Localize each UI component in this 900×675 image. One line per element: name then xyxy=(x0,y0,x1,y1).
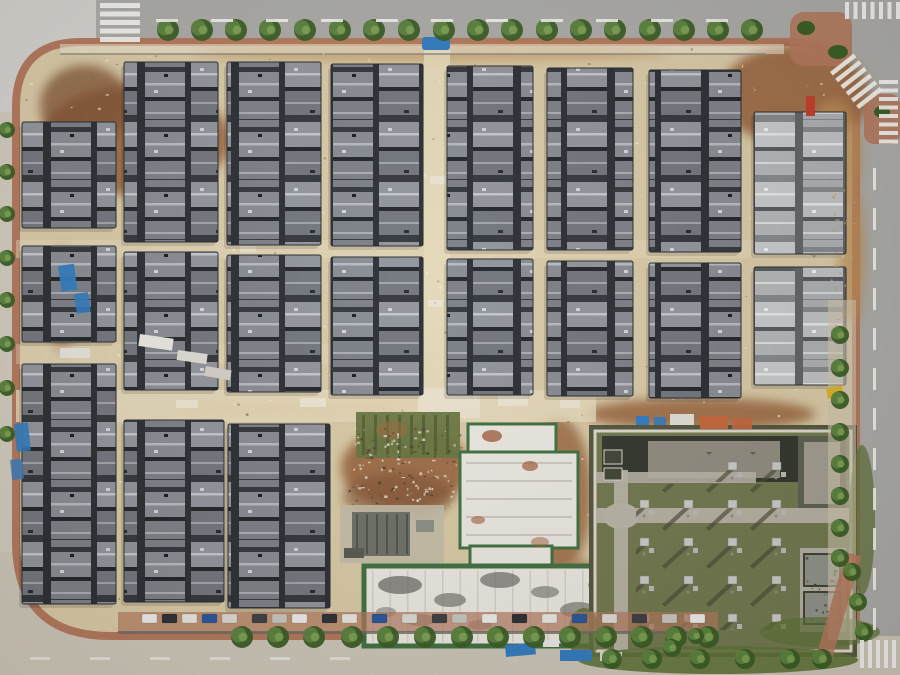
parked-cars xyxy=(402,614,417,623)
debris-pile-dark xyxy=(461,447,462,448)
crosswalk-bottom-right-bar xyxy=(868,640,872,668)
island-bush xyxy=(797,21,815,35)
ground-debris-dark xyxy=(274,252,276,254)
lane-dashes-bottom xyxy=(90,657,110,660)
debris-pile-light xyxy=(452,491,455,493)
right-sidewalk-materials xyxy=(851,296,853,298)
right-sidewalk-materials xyxy=(850,218,852,219)
garden-rows-bar xyxy=(422,415,425,455)
debris-pile-dark xyxy=(411,446,413,448)
crosswalk-right-bar xyxy=(879,123,898,127)
debris-pile-light xyxy=(391,443,393,445)
right-sidewalk-materials xyxy=(835,325,837,327)
lane-dashes-right xyxy=(873,248,876,270)
debris-pile-light xyxy=(445,431,446,432)
debris-pile-light xyxy=(407,494,409,496)
north-street-trees-hi xyxy=(406,26,415,35)
debris-pile-light xyxy=(437,476,439,479)
debris-pile-dark xyxy=(358,434,360,435)
garden-plot xyxy=(356,412,460,458)
transformer-detail xyxy=(824,594,825,595)
blue-tarp-left-2 xyxy=(10,459,24,480)
site-fence-line xyxy=(60,53,766,55)
right-sidewalk-materials xyxy=(833,230,835,232)
debris-pile-dark xyxy=(393,432,394,434)
right-sidewalk-materials xyxy=(848,287,849,289)
debris-pile-light xyxy=(389,470,392,473)
debris-pile-dark xyxy=(370,457,373,460)
parked-cars xyxy=(252,614,267,623)
rust-stain xyxy=(482,430,502,442)
right-sidewalk-materials xyxy=(844,285,846,287)
ground-debris-light xyxy=(322,212,324,213)
south-street-trees-hi xyxy=(422,633,431,642)
tree-hi xyxy=(694,633,700,639)
rust-stain xyxy=(522,461,538,471)
debris-pile-light xyxy=(456,464,457,466)
ground-debris-light xyxy=(754,90,756,91)
crosswalk-right-bar xyxy=(879,89,898,93)
north-street-trees-hi xyxy=(165,26,174,35)
south-street-trees-hi xyxy=(239,633,248,642)
staging-grid-bar xyxy=(386,514,388,554)
right-sidewalk-materials xyxy=(842,317,844,318)
ground-debris-light xyxy=(369,59,370,61)
clubhouse-roof-lines-bar xyxy=(466,498,572,500)
debris-pile-dark xyxy=(419,442,422,444)
north-street-trees-hi xyxy=(544,26,553,35)
debris-pile-dark xyxy=(411,478,413,479)
right-sidewalk-materials xyxy=(836,252,839,253)
right-sidewalk-materials xyxy=(836,308,838,309)
east-street-trees-hi xyxy=(837,364,844,371)
north-street-trees-hi xyxy=(681,26,690,35)
debris-pile-dark xyxy=(459,434,461,436)
ground-debris-dark xyxy=(746,296,747,297)
transformer-detail xyxy=(819,588,820,590)
staging-grid-bar xyxy=(406,514,408,554)
clubhouse-roof-lines-bar xyxy=(466,462,572,464)
debris-pile-dark xyxy=(450,485,453,486)
substation-south-trees-hi xyxy=(697,655,705,663)
ground-debris-light xyxy=(778,415,780,417)
ground-debris-light xyxy=(439,80,440,82)
ground-debris-light xyxy=(748,217,750,219)
debris-pile-light xyxy=(431,488,433,490)
west-street-trees-hi xyxy=(5,255,11,261)
lane-dashes-bottom xyxy=(30,657,50,660)
ground-debris-light xyxy=(439,286,442,289)
staging-grid-bar xyxy=(396,514,398,554)
lane-dashes-right xyxy=(873,528,876,550)
lane-dashes-right xyxy=(873,168,876,190)
right-sidewalk-materials xyxy=(842,312,845,314)
crosswalk-top-right-bar xyxy=(845,2,849,19)
debris-pile-light xyxy=(360,468,362,470)
concrete-patch xyxy=(430,176,446,184)
debris-pile-dark xyxy=(361,485,363,487)
right-sidewalk-materials xyxy=(844,223,846,225)
debris-pile-dark xyxy=(391,490,393,492)
debris-pile-light xyxy=(425,489,428,490)
transformer-detail xyxy=(816,610,818,611)
parked-cars xyxy=(432,614,447,623)
building-block-r2c6 xyxy=(547,261,633,396)
lane-dashes-right xyxy=(873,608,876,630)
debris-pile-dark xyxy=(373,447,375,449)
ground-debris-light xyxy=(587,514,588,515)
tree-hi xyxy=(855,598,862,605)
blue-tarp-left xyxy=(14,423,31,452)
ground-debris-dark xyxy=(402,410,404,412)
debris-pile-dark xyxy=(424,476,426,477)
right-sidewalk-materials xyxy=(835,288,837,289)
substation-path-junction xyxy=(603,503,639,529)
transformer-detail xyxy=(827,594,828,595)
debris-pile-dark xyxy=(349,490,351,492)
crosswalk-top-right-bar xyxy=(879,2,883,19)
ground-debris-light xyxy=(106,94,109,95)
debris-pile-light xyxy=(363,430,365,431)
roof-smudge xyxy=(480,572,520,588)
debris-pile-dark xyxy=(426,452,429,454)
right-sidewalk-materials xyxy=(831,280,833,282)
right-sidewalk-materials xyxy=(836,261,837,262)
substation-south-trees-hi xyxy=(787,655,795,663)
crosswalk-top-right-bar xyxy=(896,2,900,19)
debris-pile-dark xyxy=(375,503,378,505)
west-street-trees-hi xyxy=(5,431,11,437)
north-street-trees-hi xyxy=(647,26,656,35)
garden-rows-bar xyxy=(434,415,437,455)
substation-south-trees-hi xyxy=(609,655,617,663)
south-street-trees-hi xyxy=(459,633,468,642)
parked-cars xyxy=(662,614,677,623)
debris-pile-dark xyxy=(415,481,417,482)
switchgear-field xyxy=(636,484,786,630)
ground-debris-dark xyxy=(118,598,120,600)
building-block-r1c2 xyxy=(124,62,218,242)
debris-pile-dark xyxy=(384,428,387,429)
tree-hi xyxy=(861,628,868,635)
south-street-trees-hi xyxy=(311,633,320,642)
lane-dashes-top xyxy=(266,19,288,22)
debris-pile-light xyxy=(417,487,419,490)
debris-pile-light xyxy=(428,487,430,490)
ground-debris-light xyxy=(424,174,427,177)
debris-pile-dark xyxy=(366,457,369,458)
north-street-trees-hi xyxy=(199,26,208,35)
right-sidewalk-materials xyxy=(836,319,839,320)
parked-cars xyxy=(222,614,237,623)
garden-rows-bar xyxy=(410,415,413,455)
debris-pile-dark xyxy=(452,461,455,463)
lane-dashes-bottom xyxy=(210,657,230,660)
right-sidewalk-materials xyxy=(837,219,840,221)
white-trailer xyxy=(670,414,694,425)
building-block-r1c4 xyxy=(331,64,423,246)
debris-pile-light xyxy=(358,487,361,489)
north-street-trees-hi xyxy=(337,26,346,35)
building-block-r1c7 xyxy=(649,70,741,252)
debris-pile-dark xyxy=(360,438,362,440)
ground-debris-dark xyxy=(155,55,157,57)
island-bush xyxy=(828,45,848,59)
corner-island-2 xyxy=(864,94,900,144)
south-street-trees-hi xyxy=(275,633,284,642)
ground-debris-light xyxy=(30,83,33,85)
staging-shed-2 xyxy=(344,548,364,558)
debris-pile-light xyxy=(357,437,359,438)
debris-pile-light xyxy=(402,477,405,478)
red-crane xyxy=(806,96,815,116)
lane-dashes-right xyxy=(873,208,876,230)
west-street-trees-hi xyxy=(5,341,11,347)
south-street-trees-hi xyxy=(567,633,576,642)
debris-pile-light xyxy=(368,462,370,463)
lane-dashes-right xyxy=(873,568,876,590)
debris-pile-dark xyxy=(422,494,423,495)
debris-pile-light xyxy=(361,487,364,488)
debris-pile-dark xyxy=(367,449,370,452)
ground-debris-dark xyxy=(567,421,570,423)
debris-pile-dark xyxy=(447,462,448,464)
debris-pile-light xyxy=(384,495,387,497)
building-block-r2c4 xyxy=(331,257,423,395)
parked-cars xyxy=(372,614,387,623)
building-block-r2c5 xyxy=(447,259,533,395)
parked-cars xyxy=(202,614,217,623)
ground-debris-light xyxy=(323,325,325,327)
debris-pile-dark xyxy=(383,467,386,469)
debris-pile-light xyxy=(418,431,421,433)
lane-dashes-bottom xyxy=(270,657,290,660)
blue-container xyxy=(636,416,649,425)
south-street-trees-hi xyxy=(603,633,612,642)
crosswalk-top-right-bar xyxy=(888,2,892,19)
right-sidewalk-materials xyxy=(844,256,847,258)
debris-pile-light xyxy=(404,446,407,448)
substation-south-trees-hi xyxy=(742,655,750,663)
crosswalk-right-bar xyxy=(879,140,898,144)
ground-debris-dark xyxy=(432,138,434,140)
debris-pile-light xyxy=(381,468,383,471)
right-sidewalk-materials xyxy=(850,256,852,258)
tree-hi xyxy=(669,644,676,651)
ground-debris-light xyxy=(436,365,437,367)
debris-pile-dark xyxy=(402,463,405,464)
debris-pile-dark xyxy=(380,495,382,496)
scene-canvas xyxy=(0,0,900,675)
debris-pile-dark xyxy=(388,456,390,457)
ground-debris-light xyxy=(426,272,428,274)
debris-pile-light xyxy=(387,443,390,446)
ground-debris-dark xyxy=(26,99,28,101)
debris-pile-dark xyxy=(396,498,399,500)
debris-pile-dark xyxy=(372,440,374,441)
ground-debris-light xyxy=(189,405,191,408)
building-block-r1c8-unfinished xyxy=(754,112,846,254)
roof-smudge xyxy=(531,586,559,598)
north-street-trees-hi xyxy=(475,26,484,35)
right-sidewalk-materials xyxy=(849,276,851,278)
east-street-trees-hi xyxy=(837,554,844,561)
ground-debris-light xyxy=(463,417,465,418)
debris-pile-light xyxy=(417,499,419,502)
north-street-trees-hi xyxy=(441,26,450,35)
right-sidewalk-materials xyxy=(832,196,835,198)
ground-debris-light xyxy=(98,108,101,110)
debris-pile-light xyxy=(397,433,399,436)
debris-pile-light xyxy=(393,440,395,442)
lane-dashes-top xyxy=(706,19,728,22)
debris-pile-light xyxy=(384,445,386,447)
ground-debris-light xyxy=(233,403,236,406)
blue-tarp xyxy=(74,292,91,314)
debris-pile-dark xyxy=(426,493,428,495)
ground-debris-light xyxy=(823,94,824,96)
crosswalk-bottom-right-bar xyxy=(860,640,864,668)
crosswalk-right-bar xyxy=(879,114,898,118)
transformer-detail xyxy=(806,557,809,559)
south-street-trees-hi xyxy=(531,633,540,642)
right-sidewalk-materials xyxy=(847,274,848,276)
ground-debris-light xyxy=(118,354,120,356)
parked-cars xyxy=(142,614,157,623)
debris-pile-dark xyxy=(399,473,401,474)
debris-pile-dark xyxy=(355,500,358,501)
ground-debris-light xyxy=(636,142,639,144)
debris-pile-light xyxy=(412,481,414,483)
lane-dashes-top xyxy=(321,19,343,22)
right-sidewalk-materials xyxy=(834,213,836,215)
concrete-patch xyxy=(300,398,326,407)
debris-pile-light xyxy=(423,493,425,496)
crosswalk-top-left-bar xyxy=(100,29,140,34)
substation-south-trees-hi xyxy=(649,655,657,663)
building-block-r1c3 xyxy=(227,62,321,245)
ground-debris-light xyxy=(745,347,747,348)
debris-pile-light xyxy=(451,496,453,498)
transformer-detail xyxy=(807,581,808,583)
debris-pile-dark xyxy=(414,451,417,453)
debris-pile-dark xyxy=(397,447,399,449)
debris-pile-light xyxy=(365,476,368,479)
south-street-trees-hi xyxy=(349,633,358,642)
ground-debris-dark xyxy=(88,79,90,80)
staging-shed xyxy=(416,520,434,532)
ground-debris-light xyxy=(488,255,489,257)
building-block-r3c3 xyxy=(228,424,330,608)
parked-cars xyxy=(572,614,587,623)
west-street-trees-hi xyxy=(5,169,11,175)
debris-pile-light xyxy=(419,473,422,475)
substation-pond xyxy=(604,450,622,464)
lane-dashes-top xyxy=(596,19,618,22)
roof-smudge xyxy=(434,593,466,607)
crosswalk-top-right-bar xyxy=(871,2,875,19)
right-sidewalk-materials xyxy=(842,189,845,191)
crosswalk-top-left-bar xyxy=(100,20,140,25)
north-street-trees-hi xyxy=(715,26,724,35)
debris-pile-dark xyxy=(392,468,394,470)
debris-pile-dark xyxy=(435,449,437,450)
substation-pond-2 xyxy=(604,468,622,480)
north-street-trees-hi xyxy=(371,26,380,35)
north-street-trees-hi xyxy=(749,26,758,35)
building-block-r2c7 xyxy=(649,263,741,398)
lane-dashes-right xyxy=(873,328,876,350)
debris-pile-light xyxy=(452,504,454,505)
debris-pile-dark xyxy=(409,445,411,447)
substation-south-trees-hi xyxy=(819,655,827,663)
crosswalk-bottom-right-bar xyxy=(876,640,880,668)
debris-pile-light xyxy=(444,475,447,478)
right-sidewalk-materials xyxy=(841,226,842,228)
debris-pile-dark xyxy=(414,428,416,430)
south-street-trees-hi xyxy=(385,633,394,642)
lane-dashes-right xyxy=(873,488,876,510)
parked-cars xyxy=(542,614,557,623)
south-street-trees-hi xyxy=(495,633,504,642)
concrete-patch xyxy=(176,400,198,408)
ground-debris-dark xyxy=(116,64,119,65)
debris-pile-light xyxy=(355,443,357,445)
ground-debris-dark xyxy=(582,527,585,528)
orange-shed-2 xyxy=(732,418,752,429)
debris-pile-light xyxy=(397,459,399,460)
debris-pile-dark xyxy=(404,482,405,485)
debris-pile-dark xyxy=(366,452,368,453)
blue-container-2 xyxy=(654,417,666,425)
right-sidewalk-materials xyxy=(853,223,855,224)
ground-debris-dark xyxy=(356,485,359,487)
building-block-r2c3 xyxy=(227,255,321,392)
ground-debris-light xyxy=(582,458,584,460)
debris-pile-light xyxy=(357,442,360,444)
east-street-trees-hi xyxy=(837,524,844,531)
debris-pile-dark xyxy=(392,488,394,490)
parked-cars xyxy=(272,614,287,623)
lane-dashes-top xyxy=(156,19,178,22)
building-block-r1c6 xyxy=(547,68,633,250)
ground-debris-dark xyxy=(437,280,439,282)
parked-cars xyxy=(342,614,357,623)
tree-hi xyxy=(849,568,856,575)
debris-pile-dark xyxy=(365,449,367,450)
staging-grid-bar xyxy=(376,514,378,554)
clubhouse-wing-top xyxy=(468,424,556,454)
debris-pile-dark xyxy=(448,450,451,452)
ground-debris-light xyxy=(642,195,644,196)
debris-pile-light xyxy=(431,470,433,471)
building-block-r2c2 xyxy=(124,252,218,390)
north-street-trees-hi xyxy=(233,26,242,35)
ground-debris-light xyxy=(323,53,324,55)
debris-pile-dark xyxy=(442,434,443,436)
east-street-trees-hi xyxy=(837,492,844,499)
east-street-trees-hi xyxy=(837,428,844,435)
lane-dashes-bottom xyxy=(150,657,170,660)
right-sidewalk-materials xyxy=(839,272,841,274)
right-sidewalk-materials xyxy=(846,220,847,222)
ground-debris-light xyxy=(795,389,798,390)
debris-pile-light xyxy=(408,461,410,463)
rust-stain xyxy=(471,516,485,524)
debris-pile-light xyxy=(396,443,398,445)
debris-pile-light xyxy=(420,472,422,473)
crosswalk-top-right-bar xyxy=(854,2,858,19)
